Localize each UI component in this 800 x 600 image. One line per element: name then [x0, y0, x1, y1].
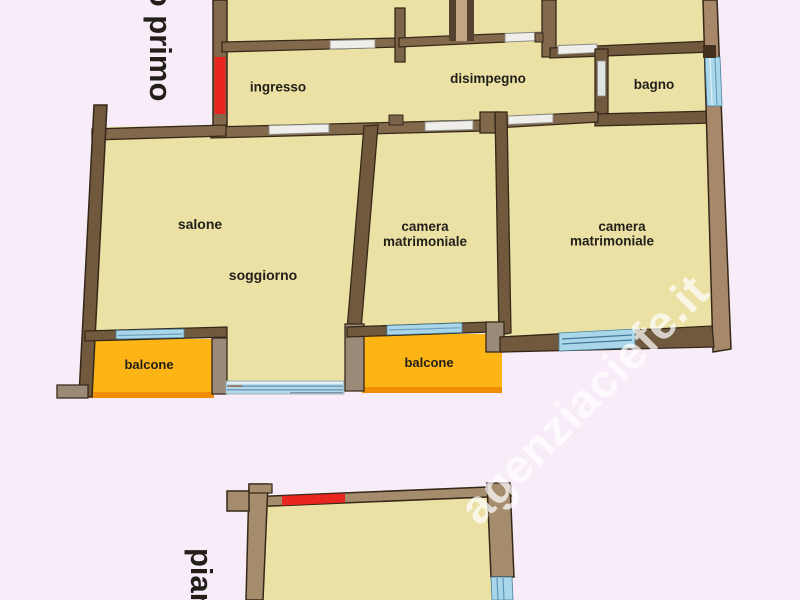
svg-text:piano primo: piano primo [143, 0, 178, 101]
svg-text:soggiorno: soggiorno [229, 267, 297, 283]
svg-text:ingresso: ingresso [250, 80, 306, 95]
svg-text:balcone: balcone [124, 357, 173, 372]
svg-text:camera: camera [401, 219, 449, 234]
svg-text:matrimoniale: matrimoniale [570, 234, 655, 249]
svg-text:disimpegno: disimpegno [450, 71, 526, 86]
svg-text:salone: salone [178, 216, 223, 232]
svg-text:matrimoniale: matrimoniale [383, 234, 468, 249]
svg-text:bagno: bagno [634, 77, 675, 92]
svg-text:camera: camera [598, 219, 646, 234]
svg-text:balcone: balcone [404, 355, 453, 370]
svg-text:piano terra: piano terra [184, 548, 219, 600]
